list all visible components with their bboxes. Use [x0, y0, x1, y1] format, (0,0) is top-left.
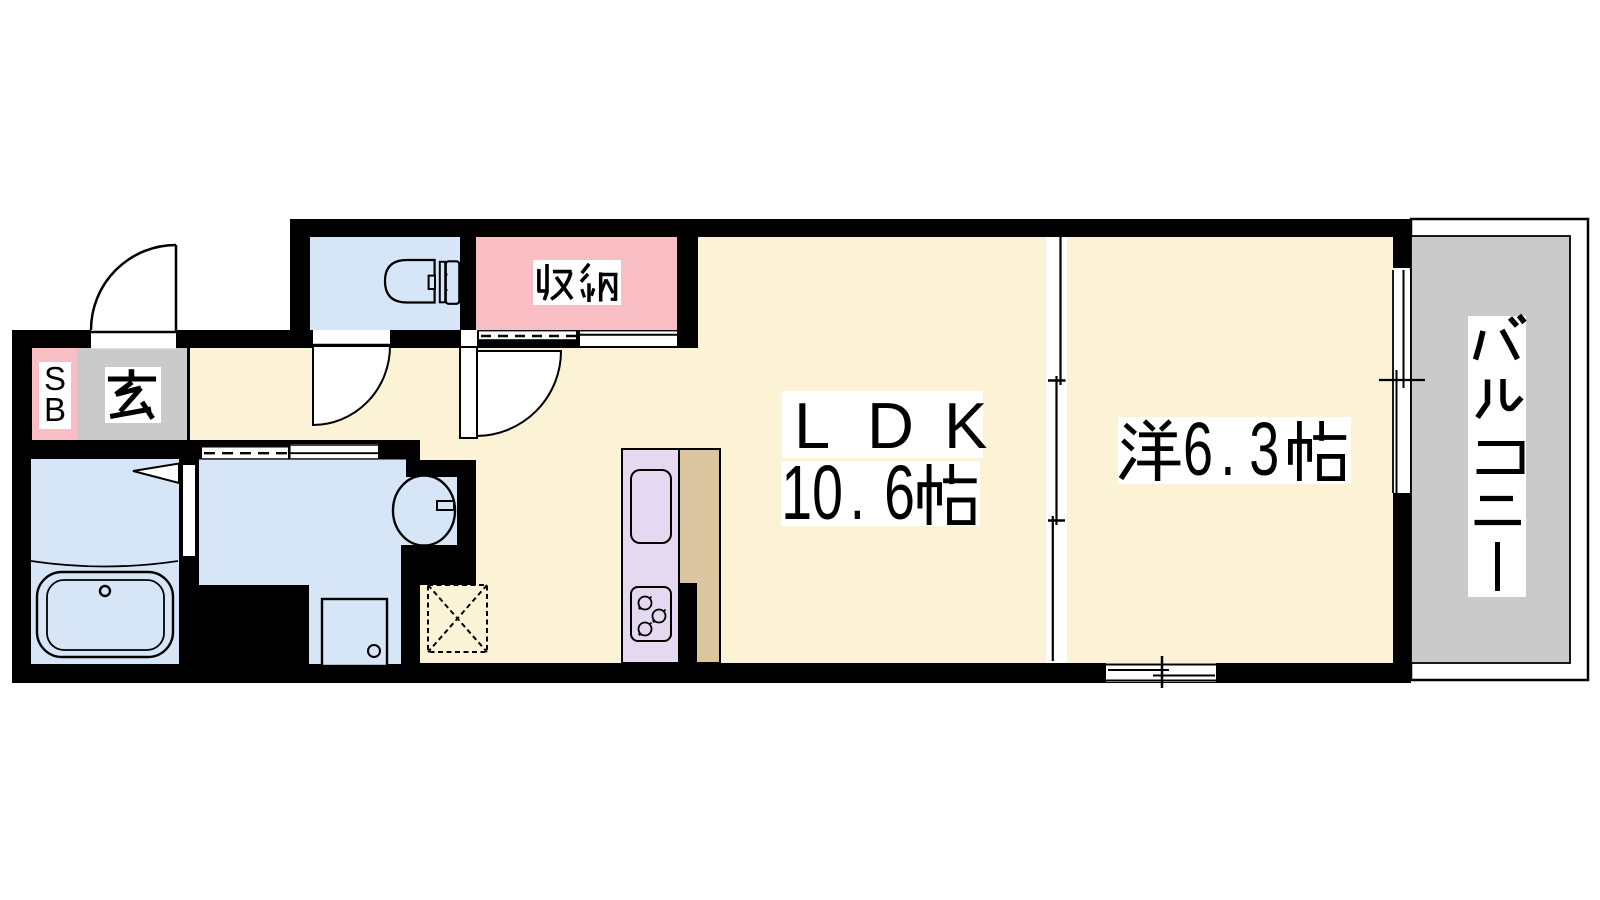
svg-text:SB: SB: [44, 360, 66, 428]
svg-text:6.3: 6.3: [1183, 407, 1279, 491]
